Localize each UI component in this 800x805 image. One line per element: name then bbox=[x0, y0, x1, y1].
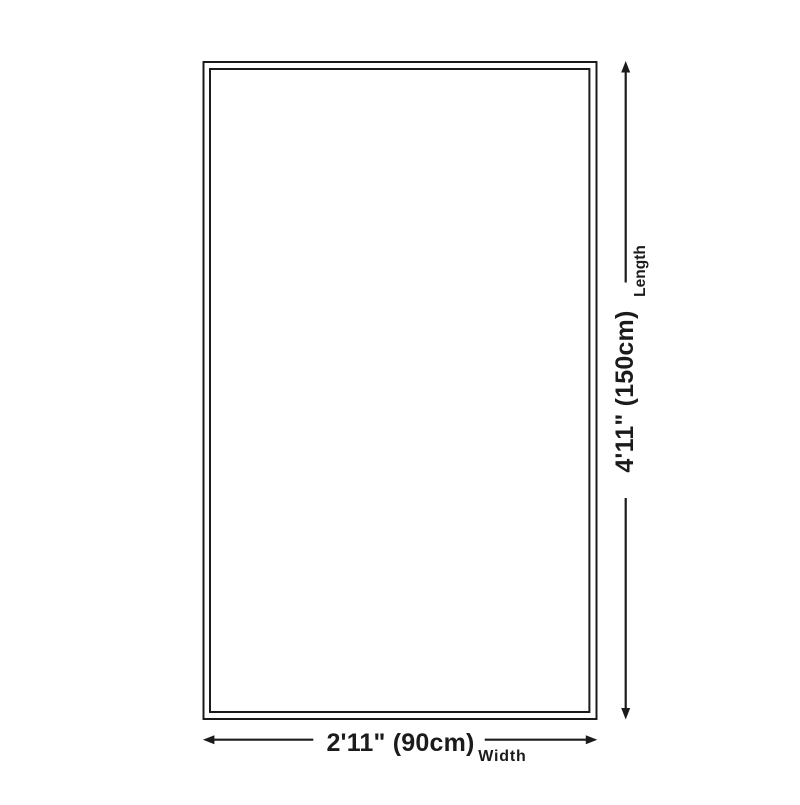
svg-text:Length: Length bbox=[632, 245, 649, 297]
svg-text:2'11" (90cm): 2'11" (90cm) bbox=[326, 729, 474, 757]
svg-text:4'11" (150cm): 4'11" (150cm) bbox=[611, 311, 639, 473]
svg-text:Width: Width bbox=[478, 748, 526, 765]
